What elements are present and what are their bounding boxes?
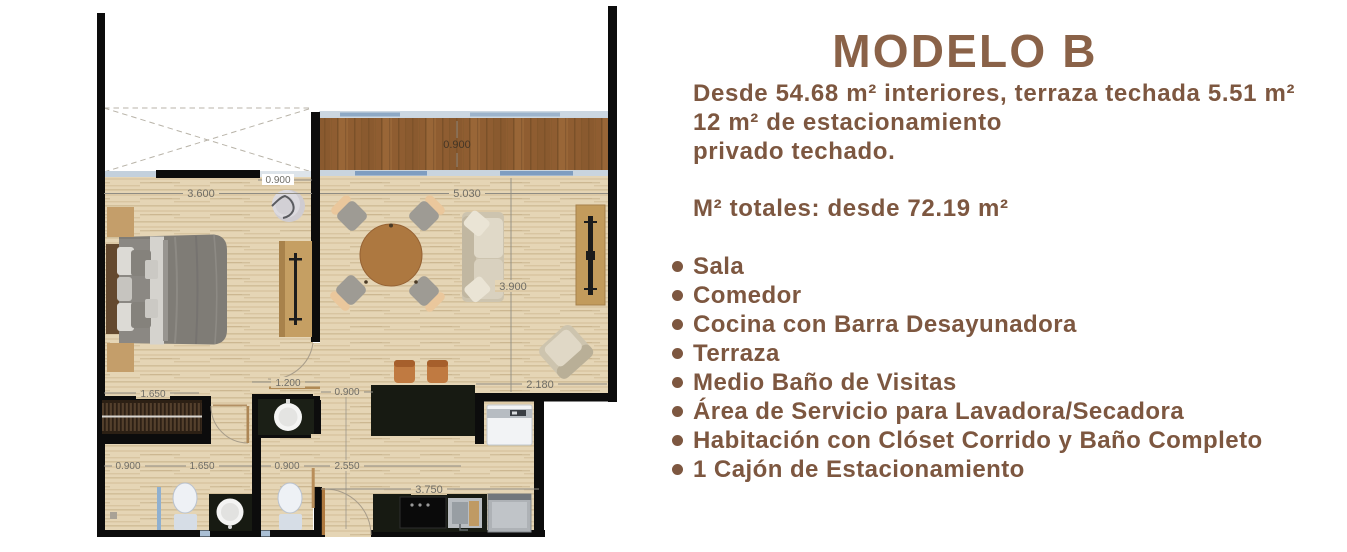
svg-text:0.900: 0.900 [274,461,299,472]
svg-text:1.650: 1.650 [140,389,165,400]
svg-text:0.900: 0.900 [115,461,140,472]
svg-text:0.900: 0.900 [443,139,471,151]
svg-text:1.200: 1.200 [275,378,300,389]
svg-text:5.030: 5.030 [453,188,481,200]
svg-text:3.750: 3.750 [415,484,443,496]
svg-text:0.900: 0.900 [334,387,359,398]
svg-text:0.900: 0.900 [265,175,290,186]
svg-text:2.180: 2.180 [526,379,554,391]
svg-text:2.550: 2.550 [334,461,359,472]
svg-text:3.900: 3.900 [499,281,527,293]
svg-text:3.600: 3.600 [187,188,215,200]
svg-text:1.650: 1.650 [189,461,214,472]
